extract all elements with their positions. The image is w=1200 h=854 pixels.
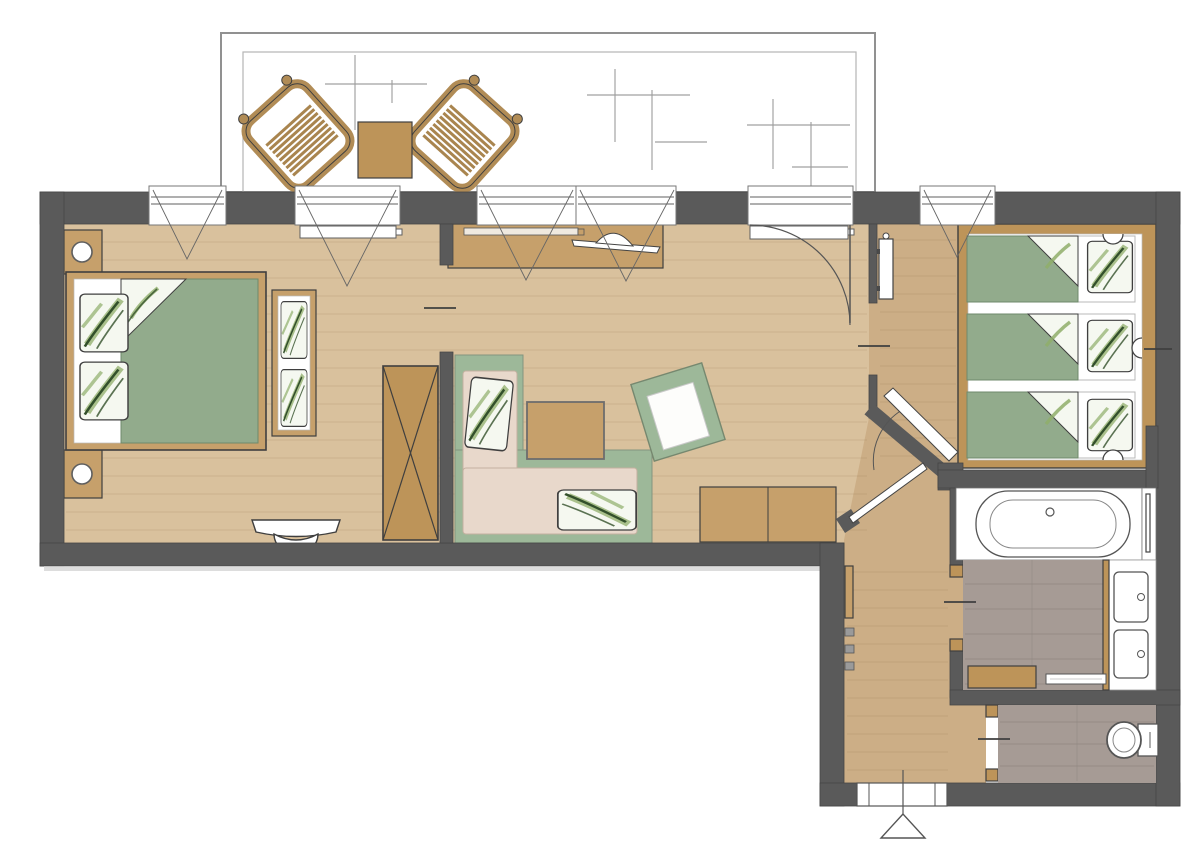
coat-hook-2: [845, 645, 854, 653]
bench-pillow-1: [281, 302, 307, 359]
wall-right: [1156, 192, 1180, 806]
lamp-top: [72, 242, 92, 262]
towel-rail: [1146, 494, 1150, 552]
floor-plan-page: [0, 0, 1200, 854]
sideboard-knob: [578, 229, 584, 235]
single-bed-1: [967, 236, 1135, 302]
wardrobe: [383, 366, 438, 540]
bathtub: [976, 491, 1130, 557]
kids-bedroom: [958, 224, 1156, 468]
living-hall-door-threshold: [869, 303, 877, 375]
wc-door-jamb-bottom: [986, 769, 998, 781]
wall-bottom-west: [40, 543, 844, 566]
sideboard-drawer: [464, 228, 578, 235]
wall-left: [40, 192, 64, 566]
sofa-pillow-1: [464, 377, 513, 451]
bed-pillow-1: [80, 294, 128, 352]
coat-rack-strip: [845, 566, 853, 618]
living-radiator: [750, 226, 848, 239]
wall-corner-block: [1146, 426, 1158, 488]
mirror-cabinet: [879, 239, 893, 299]
wall-living-hall-upper: [869, 224, 877, 303]
wc: [998, 705, 1158, 783]
entrance-direction-triangle: [881, 814, 925, 838]
wall-shadow: [44, 566, 820, 571]
mirror-cabinet-knob: [883, 233, 889, 239]
bathroom: [956, 488, 1156, 690]
basin-drain-2: [1138, 651, 1145, 658]
toilet: [1107, 722, 1158, 758]
wall-bath-wc-divider: [950, 690, 1180, 705]
coffee-table: [527, 402, 604, 459]
bench-pillow-2: [281, 370, 307, 427]
radiator-valve-2: [848, 229, 854, 235]
bath-door-jamb-top: [950, 565, 963, 577]
bathroom-door-threshold: [950, 577, 963, 639]
radiator-valve: [396, 229, 402, 235]
lamp-bottom: [72, 464, 92, 484]
wc-door-jamb-top: [986, 705, 998, 717]
wall-bedroom-divider-upper: [440, 224, 453, 265]
balcony-side-table: [358, 122, 412, 178]
bed-pillow-2: [80, 362, 128, 420]
floor-plan-canvas: [0, 0, 1200, 854]
coat-hook-3: [845, 662, 854, 670]
bathroom-bench: [968, 666, 1036, 688]
single-bed-2: [967, 314, 1135, 380]
lowboard-sideboard: [700, 487, 836, 542]
bathtub-drain: [1046, 508, 1054, 516]
wall-kids-bottom: [938, 470, 1156, 488]
basin-drain-1: [1138, 594, 1145, 601]
wall-hall-left: [820, 543, 844, 806]
bedroom-radiator: [300, 226, 396, 238]
bath-door-jamb-bottom: [950, 639, 963, 651]
coat-hook-1: [845, 628, 854, 636]
single-bed-3: [967, 392, 1135, 458]
wall-bedroom-divider-lower: [440, 352, 453, 543]
balcony: [221, 33, 875, 194]
entrance-door: [857, 783, 947, 806]
sofa-pillow-2: [558, 490, 636, 530]
vanity-wood-edge: [1103, 560, 1109, 690]
